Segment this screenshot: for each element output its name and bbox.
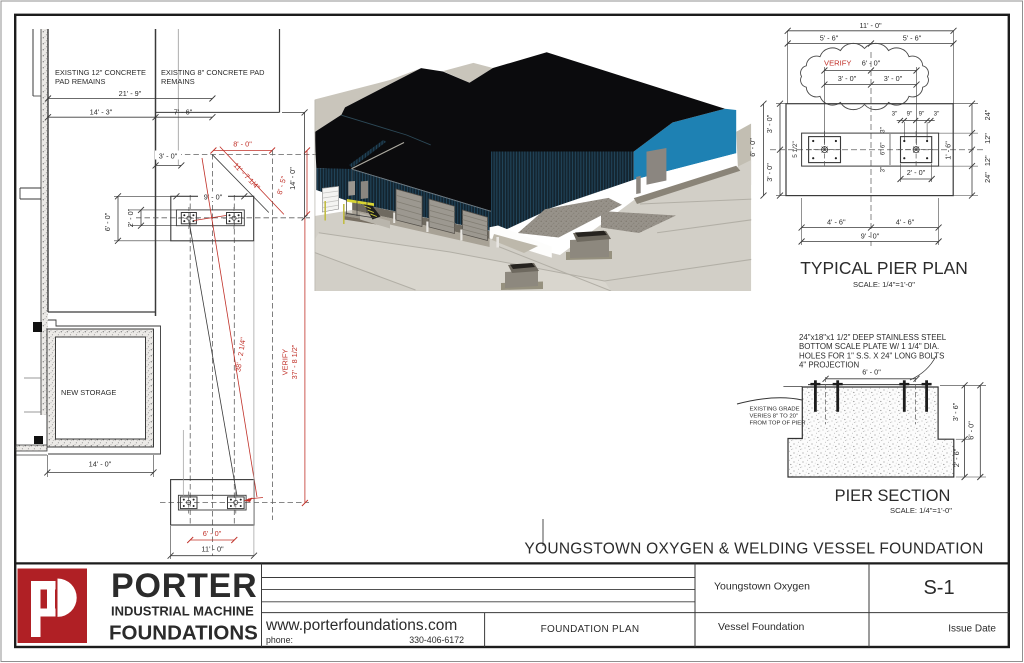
svg-text:14' - 3": 14' - 3": [90, 108, 113, 117]
svg-text:3": 3": [934, 111, 940, 118]
svg-text:12": 12": [983, 155, 992, 166]
svg-text:3' - 6": 3' - 6": [951, 402, 960, 421]
svg-text:3' - 0": 3' - 0": [838, 74, 857, 83]
svg-text:4' - 6": 4' - 6": [827, 217, 846, 226]
svg-text:3' - 0": 3' - 0": [159, 152, 178, 161]
svg-text:2' - 0": 2' - 0": [907, 168, 926, 177]
svg-text:24": 24": [983, 109, 992, 120]
svg-text:14' - 0": 14' - 0": [89, 460, 112, 469]
svg-text:5' - 6": 5' - 6": [903, 34, 922, 43]
svg-text:Issue Date: Issue Date: [948, 624, 996, 635]
svg-text:SCALE: 1/4"=1'-0": SCALE: 1/4"=1'-0": [890, 506, 952, 515]
svg-text:7' - 6": 7' - 6": [174, 108, 193, 117]
svg-text:VERIFY: VERIFY: [281, 349, 290, 375]
svg-text:EXISTING 8" CONCRETE PAD: EXISTING 8" CONCRETE PAD: [161, 68, 265, 77]
svg-text:21' - 9": 21' - 9": [119, 89, 142, 98]
svg-text:Youngstown Oxygen: Youngstown Oxygen: [714, 581, 810, 593]
svg-text:HOLES FOR 1" S.S. X 24" LONG B: HOLES FOR 1" S.S. X 24" LONG BOLTS: [799, 351, 944, 360]
svg-text:3' - 0": 3' - 0": [765, 163, 774, 182]
svg-text:FOUNDATIONS: FOUNDATIONS: [109, 622, 258, 645]
svg-text:6' - 0": 6' - 0": [103, 212, 112, 231]
svg-text:9": 9": [919, 111, 925, 118]
svg-text:3": 3": [880, 127, 887, 133]
svg-text:3' - 0": 3' - 0": [884, 74, 903, 83]
svg-text:1' - 6": 1' - 6": [944, 141, 953, 160]
svg-text:TYPICAL PIER PLAN: TYPICAL PIER PLAN: [800, 258, 968, 278]
svg-text:YOUNGSTOWN OXYGEN & WELDING V: YOUNGSTOWN OXYGEN & WELDING VESSEL FOUND…: [524, 541, 983, 558]
svg-text:2' - 6": 2' - 6": [952, 448, 961, 467]
svg-text:5 1/2": 5 1/2": [792, 141, 799, 157]
svg-text:3": 3": [880, 167, 887, 173]
svg-text:PAD REMAINS: PAD REMAINS: [55, 77, 105, 86]
svg-text:PIER SECTION: PIER SECTION: [835, 487, 951, 505]
svg-text:REMAINS: REMAINS: [161, 77, 195, 86]
svg-text:phone:: phone:: [266, 635, 293, 645]
svg-text:9' - 0": 9' - 0": [204, 192, 223, 201]
svg-text:330-406-6172: 330-406-6172: [409, 635, 464, 645]
svg-text:SCALE: 1/4"=1'-0": SCALE: 1/4"=1'-0": [853, 280, 915, 289]
svg-text:VERIES 8" TO 20": VERIES 8" TO 20": [750, 414, 799, 420]
svg-text:INDUSTRIAL MACHINE: INDUSTRIAL MACHINE: [111, 604, 254, 619]
svg-text:Vessel Foundation: Vessel Foundation: [718, 621, 805, 633]
svg-text:www.porterfoundations.com: www.porterfoundations.com: [265, 617, 457, 634]
svg-text:EXISTING 12" CONCRETE: EXISTING 12" CONCRETE: [55, 68, 146, 77]
svg-text:14' - 0": 14' - 0": [288, 167, 297, 190]
svg-text:6": 6": [880, 142, 887, 148]
svg-text:9' - 0": 9' - 0": [861, 231, 880, 240]
svg-text:24"x18"x1 1/2" DEEP STAINLESS: 24"x18"x1 1/2" DEEP STAINLESS STEEL: [799, 333, 947, 342]
svg-text:2' - 0": 2' - 0": [126, 208, 135, 227]
svg-text:S-1: S-1: [923, 577, 954, 599]
svg-text:EXISTING GRADE: EXISTING GRADE: [750, 407, 800, 413]
svg-text:11' - 0": 11' - 0": [202, 545, 225, 554]
svg-text:6' - 0": 6' - 0": [203, 529, 222, 538]
svg-text:12": 12": [983, 133, 992, 144]
svg-text:4' - 6": 4' - 6": [896, 217, 915, 226]
svg-text:BOTTOM SCALE PLATE W/ 1 1/4": BOTTOM SCALE PLATE W/ 1 1/4" DIA.: [799, 342, 939, 351]
svg-text:24": 24": [983, 172, 992, 183]
svg-text:4" PROJECTION: 4" PROJECTION: [799, 361, 860, 370]
svg-text:6' - 0": 6' - 0": [748, 138, 757, 157]
svg-text:37' - 8 1/2": 37' - 8 1/2": [290, 344, 299, 379]
svg-text:3' - 0": 3' - 0": [765, 114, 774, 133]
svg-text:6' - 0": 6' - 0": [967, 421, 976, 440]
svg-text:VERIFY: VERIFY: [824, 59, 851, 68]
svg-text:3": 3": [892, 111, 898, 118]
svg-text:6": 6": [880, 149, 887, 155]
svg-text:5' - 6": 5' - 6": [820, 34, 839, 43]
svg-text:PORTER: PORTER: [111, 567, 257, 605]
svg-text:8' - 0": 8' - 0": [233, 140, 252, 149]
svg-text:FROM TOP OF PIER: FROM TOP OF PIER: [750, 421, 806, 427]
svg-text:11' - 0": 11' - 0": [860, 21, 883, 30]
svg-text:NEW STORAGE: NEW STORAGE: [61, 388, 116, 397]
svg-text:FOUNDATION PLAN: FOUNDATION PLAN: [541, 624, 640, 635]
svg-text:6' - 0": 6' - 0": [862, 368, 881, 377]
svg-text:9": 9": [907, 111, 913, 118]
